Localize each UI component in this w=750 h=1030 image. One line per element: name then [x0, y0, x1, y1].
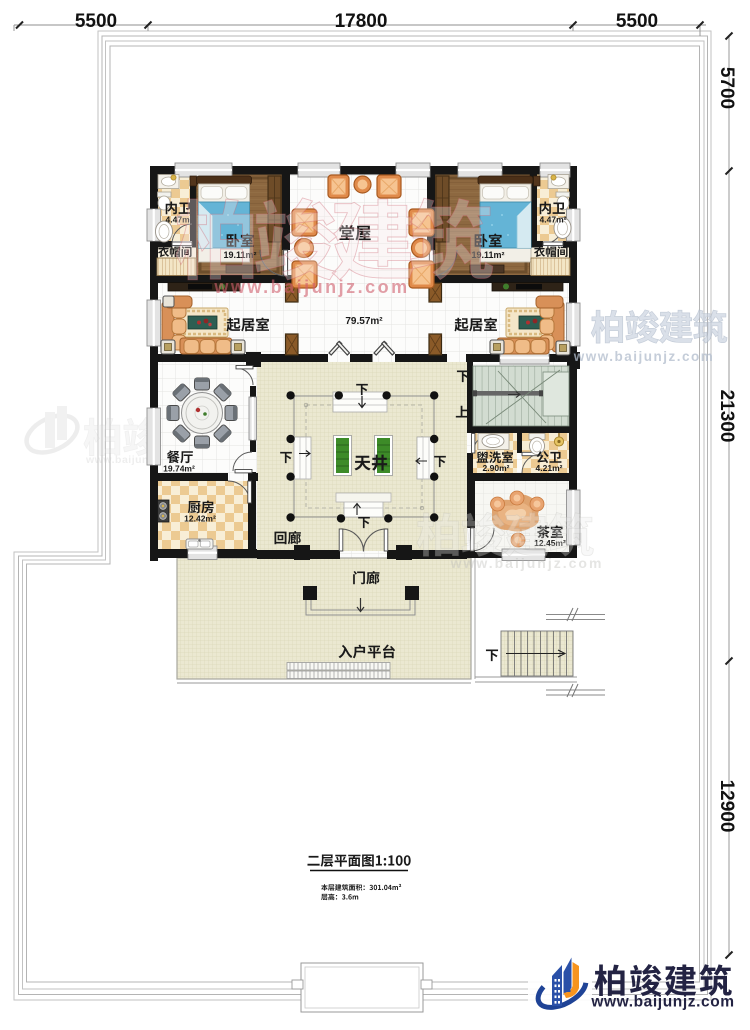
- svg-text:17800: 17800: [335, 11, 388, 32]
- svg-text:www.baijunjz.com: www.baijunjz.com: [590, 994, 734, 1011]
- svg-text:2.90m²: 2.90m²: [483, 463, 510, 473]
- svg-text:12.42m²: 12.42m²: [184, 514, 216, 524]
- svg-text:5500: 5500: [75, 11, 117, 32]
- svg-text:79.57m²: 79.57m²: [345, 316, 383, 327]
- svg-text:19.74m²: 19.74m²: [163, 464, 195, 474]
- svg-text:5500: 5500: [616, 11, 658, 32]
- svg-text:4.47m²: 4.47m²: [540, 215, 567, 225]
- svg-text:www.baijunjz.com: www.baijunjz.com: [450, 555, 604, 571]
- svg-text:5700: 5700: [716, 67, 737, 109]
- svg-text:12900: 12900: [716, 780, 737, 833]
- svg-text:www.baijunjz.com: www.baijunjz.com: [213, 277, 409, 297]
- svg-text:4.21m²: 4.21m²: [536, 463, 563, 473]
- svg-text:www.baijunjz.com: www.baijunjz.com: [573, 349, 715, 364]
- svg-text:21300: 21300: [716, 390, 737, 443]
